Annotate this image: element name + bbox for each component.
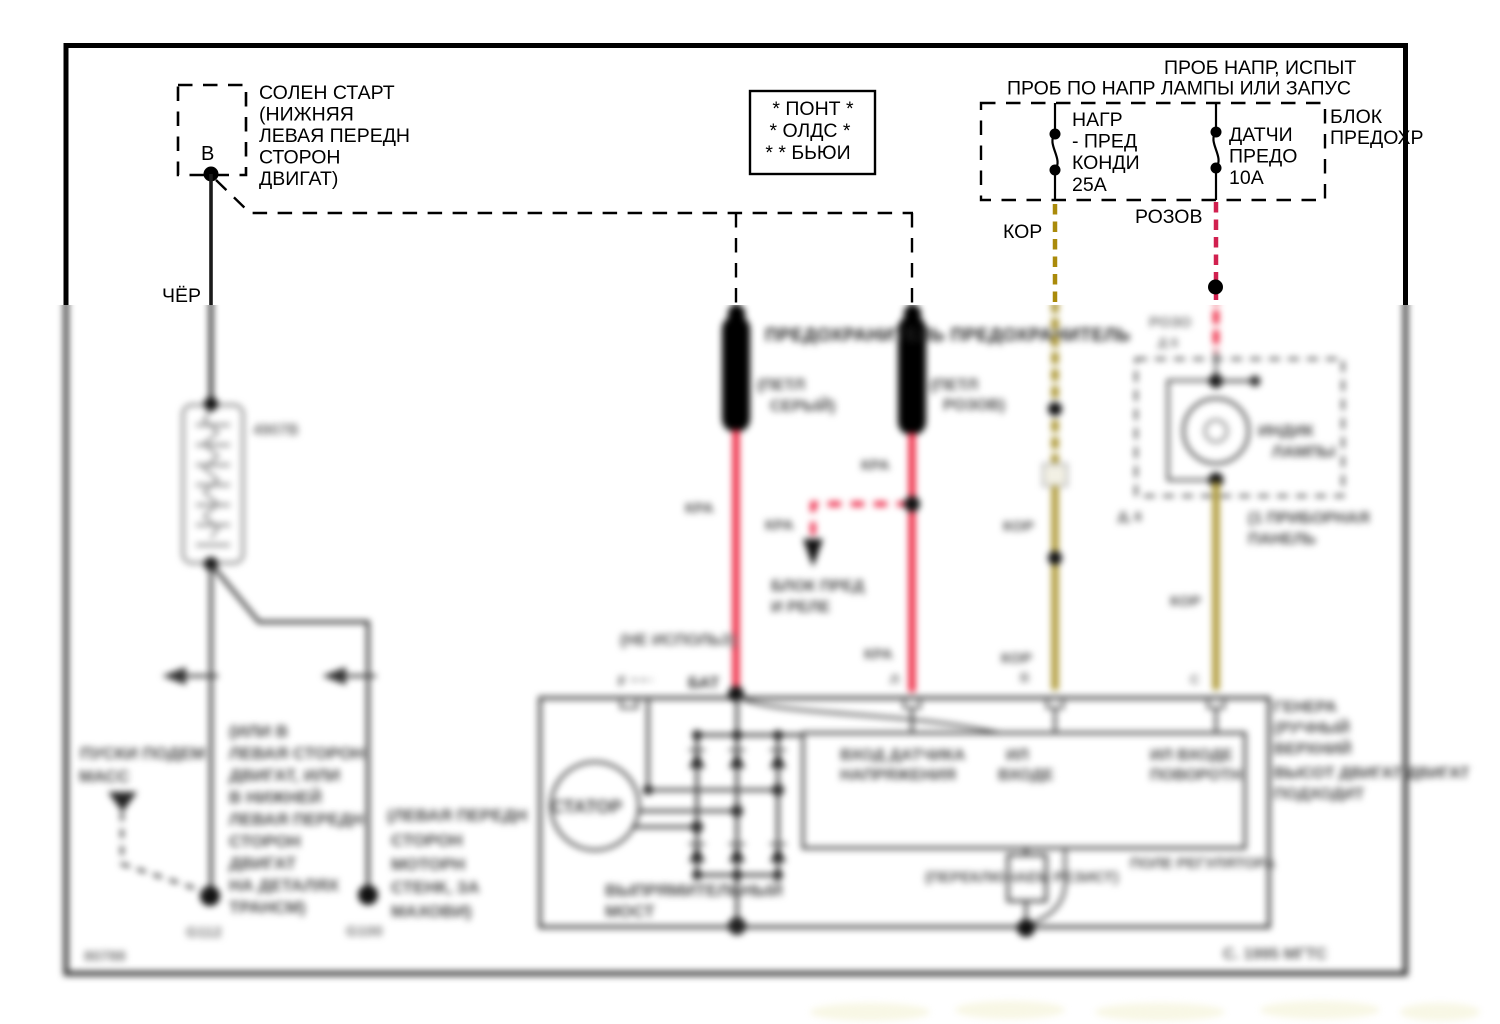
svg-text:ПРЕДОХРАНИТЕЛЬ ПРЕДОХРАНИТЕЛЬ: ПРЕДОХРАНИТЕЛЬ ПРЕДОХРАНИТЕЛЬ — [765, 325, 1131, 345]
svg-text:(ЛЕВАЯ ПЕРЕДН: (ЛЕВАЯ ПЕРЕДН — [387, 806, 527, 825]
svg-text:В НИЖНЕЙ: В НИЖНЕЙ — [229, 788, 322, 807]
svg-text:СТАТОР: СТАТОР — [551, 797, 622, 817]
svg-text:ЛЕВАЯ СТОРОН: ЛЕВАЯ СТОРОН — [229, 744, 365, 763]
svg-text:СТЕНК, ЗА: СТЕНК, ЗА — [391, 878, 480, 897]
svg-text:ВЕРХНИЙ: ВЕРХНИЙ — [1274, 739, 1352, 758]
svg-text:* ОЛДС *: * ОЛДС * — [769, 120, 850, 142]
svg-text:ИНДИК: ИНДИК — [1258, 423, 1314, 440]
svg-text:РОЗО: РОЗО — [1149, 314, 1192, 331]
svg-text:КОР: КОР — [1170, 593, 1201, 610]
svg-text:РОЗОВ: РОЗОВ — [1135, 206, 1202, 228]
svg-text:10А: 10А — [1229, 167, 1264, 189]
svg-text:НАПРЯЖЕНИЯ: НАПРЯЖЕНИЯ — [840, 767, 956, 784]
svg-text:ЛАМПЫ: ЛАМПЫ — [1272, 444, 1335, 461]
svg-text:ИЛ ВХОДЕ: ИЛ ВХОДЕ — [1150, 747, 1233, 764]
svg-text:(НЕ ИСПОЛЬЗ): (НЕ ИСПОЛЬЗ) — [620, 632, 736, 649]
svg-text:G112: G112 — [186, 924, 222, 941]
svg-text:ПУСКИ ПОДЕМ: ПУСКИ ПОДЕМ — [80, 744, 205, 763]
svg-text:МОТОРН: МОТОРН — [391, 855, 465, 874]
svg-text:И РЕЛЕ: И РЕЛЕ — [771, 599, 831, 616]
svg-text:ДВИГАТ, ИЛИ: ДВИГАТ, ИЛИ — [229, 766, 340, 785]
svg-text:ЛЕВАЯ ПЕРЕДН: ЛЕВАЯ ПЕРЕДН — [229, 810, 364, 829]
svg-text:(НИЖНЯЯ: (НИЖНЯЯ — [259, 104, 354, 126]
svg-text:В: В — [201, 143, 214, 165]
svg-text:СТОРОН: СТОРОН — [391, 831, 463, 850]
svg-text:ЧЁР: ЧЁР — [162, 285, 201, 307]
svg-text:ПАНЕЛЬ: ПАНЕЛЬ — [1248, 531, 1316, 548]
svg-text:НАГР: НАГР — [1072, 109, 1123, 131]
svg-text:(ИЛИ В: (ИЛИ В — [229, 722, 288, 741]
svg-text:25А: 25А — [1072, 174, 1107, 196]
svg-text:F: F — [618, 673, 627, 689]
svg-text:КОР: КОР — [1001, 650, 1032, 667]
svg-text:ПОЛЕ РЕГУЛЯТОРА: ПОЛЕ РЕГУЛЯТОРА — [1130, 855, 1275, 872]
svg-text:ИЛ: ИЛ — [1006, 747, 1029, 764]
svg-text:С. 1995 МГТС: С. 1995 МГТС — [1223, 946, 1328, 963]
svg-text:В: В — [1020, 670, 1029, 685]
svg-text:ТРАНСМ): ТРАНСМ) — [229, 898, 306, 917]
svg-text:Л: Л — [890, 672, 899, 687]
svg-text:(РУЧНЫЙ: (РУЧНЫЙ — [1274, 718, 1350, 737]
svg-text:КРА: КРА — [765, 517, 794, 534]
svg-text:ПРЕДО: ПРЕДО — [1229, 146, 1297, 168]
svg-text:ВХОД ДАТЧИКА: ВХОД ДАТЧИКА — [840, 747, 966, 764]
svg-text:(ПЕТЛ: (ПЕТЛ — [757, 377, 805, 394]
svg-text:ВЫСОТ ДВИГАТ ДВИГАТ: ВЫСОТ ДВИГАТ ДВИГАТ — [1274, 765, 1470, 782]
svg-text:Д, 6: Д, 6 — [1118, 509, 1142, 524]
svg-text:ДВИГАТ): ДВИГАТ) — [259, 168, 338, 190]
svg-text:* ПОНТ *: * ПОНТ * — [772, 98, 854, 120]
svg-text:ДАТЧИ: ДАТЧИ — [1229, 124, 1293, 146]
svg-text:(1 ПРИБОРНАЯ: (1 ПРИБОРНАЯ — [1248, 510, 1370, 527]
svg-text:- ПРЕД: - ПРЕД — [1072, 131, 1137, 153]
svg-text:КРА: КРА — [864, 646, 893, 663]
svg-text:ГЕНЕРА: ГЕНЕРА — [1274, 699, 1337, 716]
svg-text:ПРЕДОХР: ПРЕДОХР — [1330, 127, 1424, 149]
svg-text:С: С — [1190, 672, 1200, 687]
svg-text:КОР: КОР — [1003, 518, 1034, 535]
svg-text:ВЫПРЯМИТЕЛЬНЫЙ: ВЫПРЯМИТЕЛЬНЫЙ — [605, 881, 783, 900]
svg-text:* * БЬЮИ: * * БЬЮИ — [765, 142, 850, 164]
svg-text:(ПЕРЕКЛЮЧАЕМ РЕЗИСТ): (ПЕРЕКЛЮЧАЕМ РЕЗИСТ) — [925, 869, 1119, 886]
svg-text:СЕРЫЙ): СЕРЫЙ) — [770, 396, 835, 415]
svg-text:ПРОБ ПО НАПР ЛАМПЫ ИЛИ ЗАПУС: ПРОБ ПО НАПР ЛАМПЫ ИЛИ ЗАПУС — [1007, 78, 1351, 100]
svg-text:ПРОБ НАПР, ИСПЫТ: ПРОБ НАПР, ИСПЫТ — [1164, 57, 1356, 79]
svg-text:СОЛЕН СТАРТ: СОЛЕН СТАРТ — [259, 82, 395, 104]
svg-text:КРА: КРА — [861, 457, 890, 474]
svg-text:КРА: КРА — [685, 500, 714, 517]
svg-text:СТОРОН: СТОРОН — [259, 147, 340, 169]
svg-text:МАХОВИ): МАХОВИ) — [391, 902, 472, 921]
svg-text:ДВИГАТ: ДВИГАТ — [229, 854, 297, 873]
svg-text:ВХОДЕ: ВХОДЕ — [998, 767, 1054, 784]
svg-text:ЛЕВАЯ ПЕРЕДН: ЛЕВАЯ ПЕРЕДН — [259, 125, 410, 147]
svg-text:ПОДХОДИТ: ПОДХОДИТ — [1274, 786, 1365, 803]
svg-text:МАСС: МАСС — [79, 767, 130, 786]
svg-text:80788: 80788 — [84, 948, 126, 965]
svg-text:РОЗОВ): РОЗОВ) — [943, 397, 1005, 414]
svg-text:БЛОК: БЛОК — [1330, 106, 1383, 128]
svg-text:СТОРОН: СТОРОН — [229, 832, 301, 851]
svg-text:G100: G100 — [346, 923, 383, 940]
svg-text:КОНДИ: КОНДИ — [1072, 152, 1140, 174]
svg-text:4907В: 4907В — [253, 422, 299, 439]
svg-text:БАТ: БАТ — [688, 675, 720, 692]
svg-text:МОСТ: МОСТ — [605, 902, 655, 921]
svg-text:БЛОК ПРЕД: БЛОК ПРЕД — [771, 578, 865, 595]
svg-text:(ПЕТЛ: (ПЕТЛ — [930, 377, 978, 394]
svg-text:НА ДЕТАЛЯХ: НА ДЕТАЛЯХ — [229, 876, 340, 895]
svg-text:ПОВОРОТН: ПОВОРОТН — [1150, 767, 1242, 784]
svg-text:КОР: КОР — [1003, 221, 1042, 243]
svg-text:Д 6: Д 6 — [1158, 335, 1178, 350]
